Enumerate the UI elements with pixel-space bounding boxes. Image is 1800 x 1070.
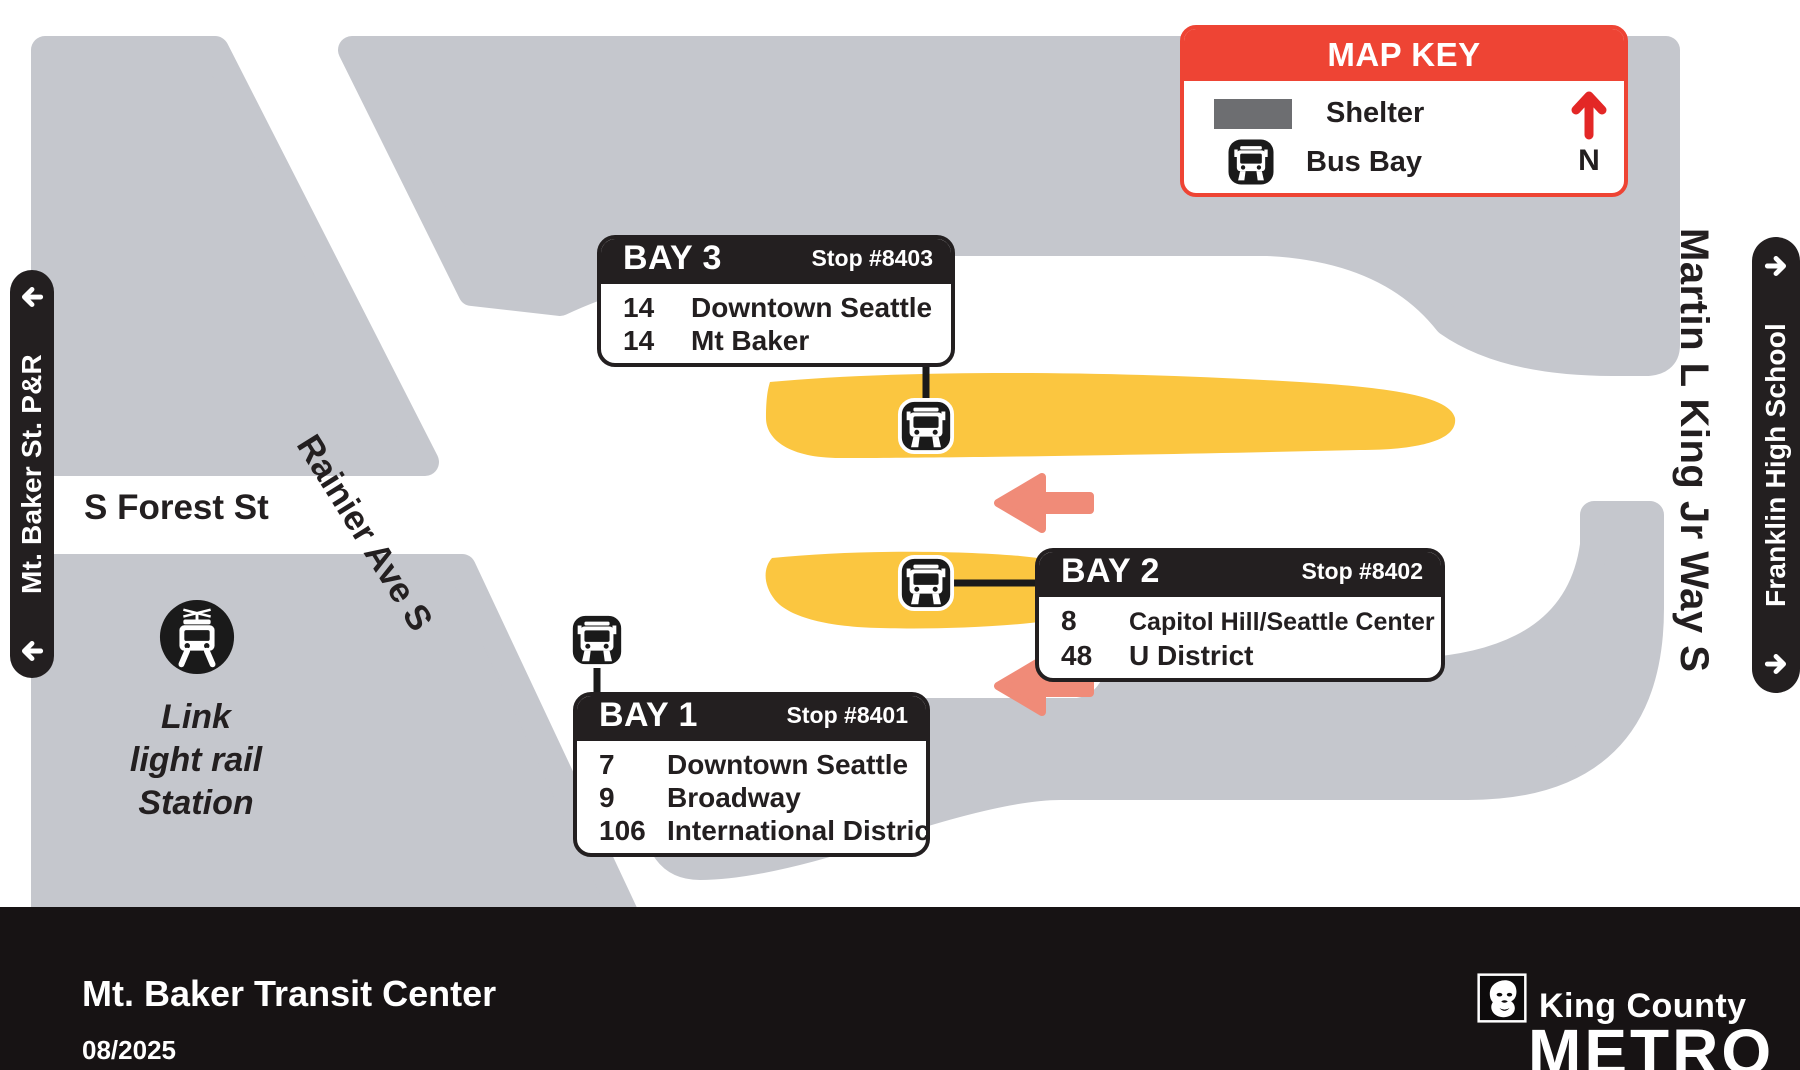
- map-key-bus-bay-row: Bus Bay: [1226, 137, 1422, 187]
- bay-3-header: BAY 3 Stop #8403: [601, 239, 951, 284]
- bay-1-header: BAY 1 Stop #8401: [577, 696, 926, 741]
- map-key: MAP KEY Shelter Bus Bay N: [1180, 25, 1628, 197]
- king-county-logo-icon: [1477, 973, 1527, 1023]
- bay-3-box: BAY 3 Stop #8403 14 Downtown Seattle 14 …: [597, 235, 955, 367]
- route-row: 7 Downtown Seattle: [599, 748, 916, 781]
- shelter-label: Shelter: [1326, 97, 1424, 130]
- sign-franklin-wrap: Franklin High School: [1752, 237, 1800, 693]
- north-indicator: N: [1564, 89, 1614, 178]
- route-number: 14: [623, 324, 691, 357]
- bus-bay-icon: [568, 611, 626, 669]
- route-row: 8 Capitol Hill/Seattle Center: [1061, 604, 1431, 639]
- street-label-mlk: Martin L King Jr Way S: [1666, 228, 1722, 698]
- bay-2-header: BAY 2 Stop #8402: [1039, 552, 1441, 597]
- street-label-mlk-wrap: Martin L King Jr Way S: [1666, 228, 1722, 698]
- route-destination: Downtown Seattle: [667, 748, 908, 781]
- shelter-swatch-icon: [1214, 99, 1292, 129]
- route-row: 106 International District: [599, 814, 916, 847]
- route-number: 106: [599, 814, 667, 847]
- bay-stop-number: Stop #8403: [812, 245, 933, 272]
- bay-name: BAY 3: [623, 239, 722, 278]
- route-destination: Capitol Hill/Seattle Center: [1129, 606, 1435, 639]
- sign-franklin-high-school: Franklin High School: [1752, 237, 1800, 693]
- route-number: 9: [599, 781, 667, 814]
- map-date: 08/2025: [82, 1035, 176, 1066]
- route-row: 14 Mt Baker: [623, 324, 941, 357]
- map-key-title: MAP KEY: [1184, 29, 1624, 81]
- route-destination: Mt Baker: [691, 324, 809, 357]
- link-station-line: Link: [88, 696, 304, 739]
- bus-bay-icon: [897, 554, 955, 612]
- bay-3-routes: 14 Downtown Seattle 14 Mt Baker: [601, 284, 951, 363]
- bay-1-routes: 7 Downtown Seattle 9 Broadway 106 Intern…: [577, 741, 926, 853]
- sign-franklin-label: Franklin High School: [1760, 323, 1792, 607]
- transit-map-page: Link light rail Station S Forest St Rain…: [0, 0, 1800, 1070]
- bay-stop-number: Stop #8402: [1302, 558, 1423, 585]
- sign-mt-baker-pr-wrap: Mt. Baker St. P&R: [10, 270, 54, 678]
- flow-arrow-upper: [998, 477, 1090, 529]
- sign-mt-baker-pr-label: Mt. Baker St. P&R: [16, 354, 48, 594]
- link-station-line: light rail: [88, 739, 304, 782]
- route-row: 9 Broadway: [599, 781, 916, 814]
- north-label: N: [1564, 144, 1614, 178]
- agency-brand: METRO: [1528, 1015, 1774, 1070]
- bay-stop-number: Stop #8401: [787, 702, 908, 729]
- street-label-s-forest: S Forest St: [84, 488, 269, 528]
- link-station-line: Station: [88, 782, 304, 825]
- arrow-left-icon: [19, 638, 45, 664]
- arrow-right-icon: [1763, 253, 1789, 279]
- page-title: Mt. Baker Transit Center: [82, 973, 496, 1015]
- route-destination: International District: [667, 814, 930, 847]
- north-arrow-icon: [1568, 89, 1610, 141]
- light-rail-icon: [158, 598, 236, 676]
- sign-mt-baker-pr: Mt. Baker St. P&R: [10, 270, 54, 678]
- arrow-right-icon: [1763, 651, 1789, 677]
- map-key-shelter-row: Shelter: [1214, 97, 1424, 130]
- platform-top: [766, 373, 1455, 458]
- route-destination: Downtown Seattle: [691, 291, 932, 324]
- route-destination: Broadway: [667, 781, 801, 814]
- route-number: 7: [599, 748, 667, 781]
- route-destination: U District: [1129, 639, 1253, 672]
- route-number: 14: [623, 291, 691, 324]
- route-row: 14 Downtown Seattle: [623, 291, 941, 324]
- bay-name: BAY 2: [1061, 552, 1160, 591]
- route-number: 48: [1061, 639, 1129, 672]
- bus-bay-label: Bus Bay: [1306, 146, 1422, 179]
- bay-2-box: BAY 2 Stop #8402 8 Capitol Hill/Seattle …: [1035, 548, 1445, 682]
- footer-bar: Mt. Baker Transit Center 08/2025 King Co…: [0, 907, 1800, 1070]
- bay-1-box: BAY 1 Stop #8401 7 Downtown Seattle 9 Br…: [573, 692, 930, 857]
- arrow-left-icon: [19, 284, 45, 310]
- route-row: 48 U District: [1061, 639, 1431, 672]
- link-station-label: Link light rail Station: [88, 696, 304, 825]
- route-number: 8: [1061, 604, 1129, 637]
- bus-bay-icon: [1226, 137, 1276, 187]
- bus-bay-icon: [897, 397, 955, 455]
- bay-name: BAY 1: [599, 696, 698, 735]
- bay-2-routes: 8 Capitol Hill/Seattle Center 48 U Distr…: [1039, 597, 1441, 678]
